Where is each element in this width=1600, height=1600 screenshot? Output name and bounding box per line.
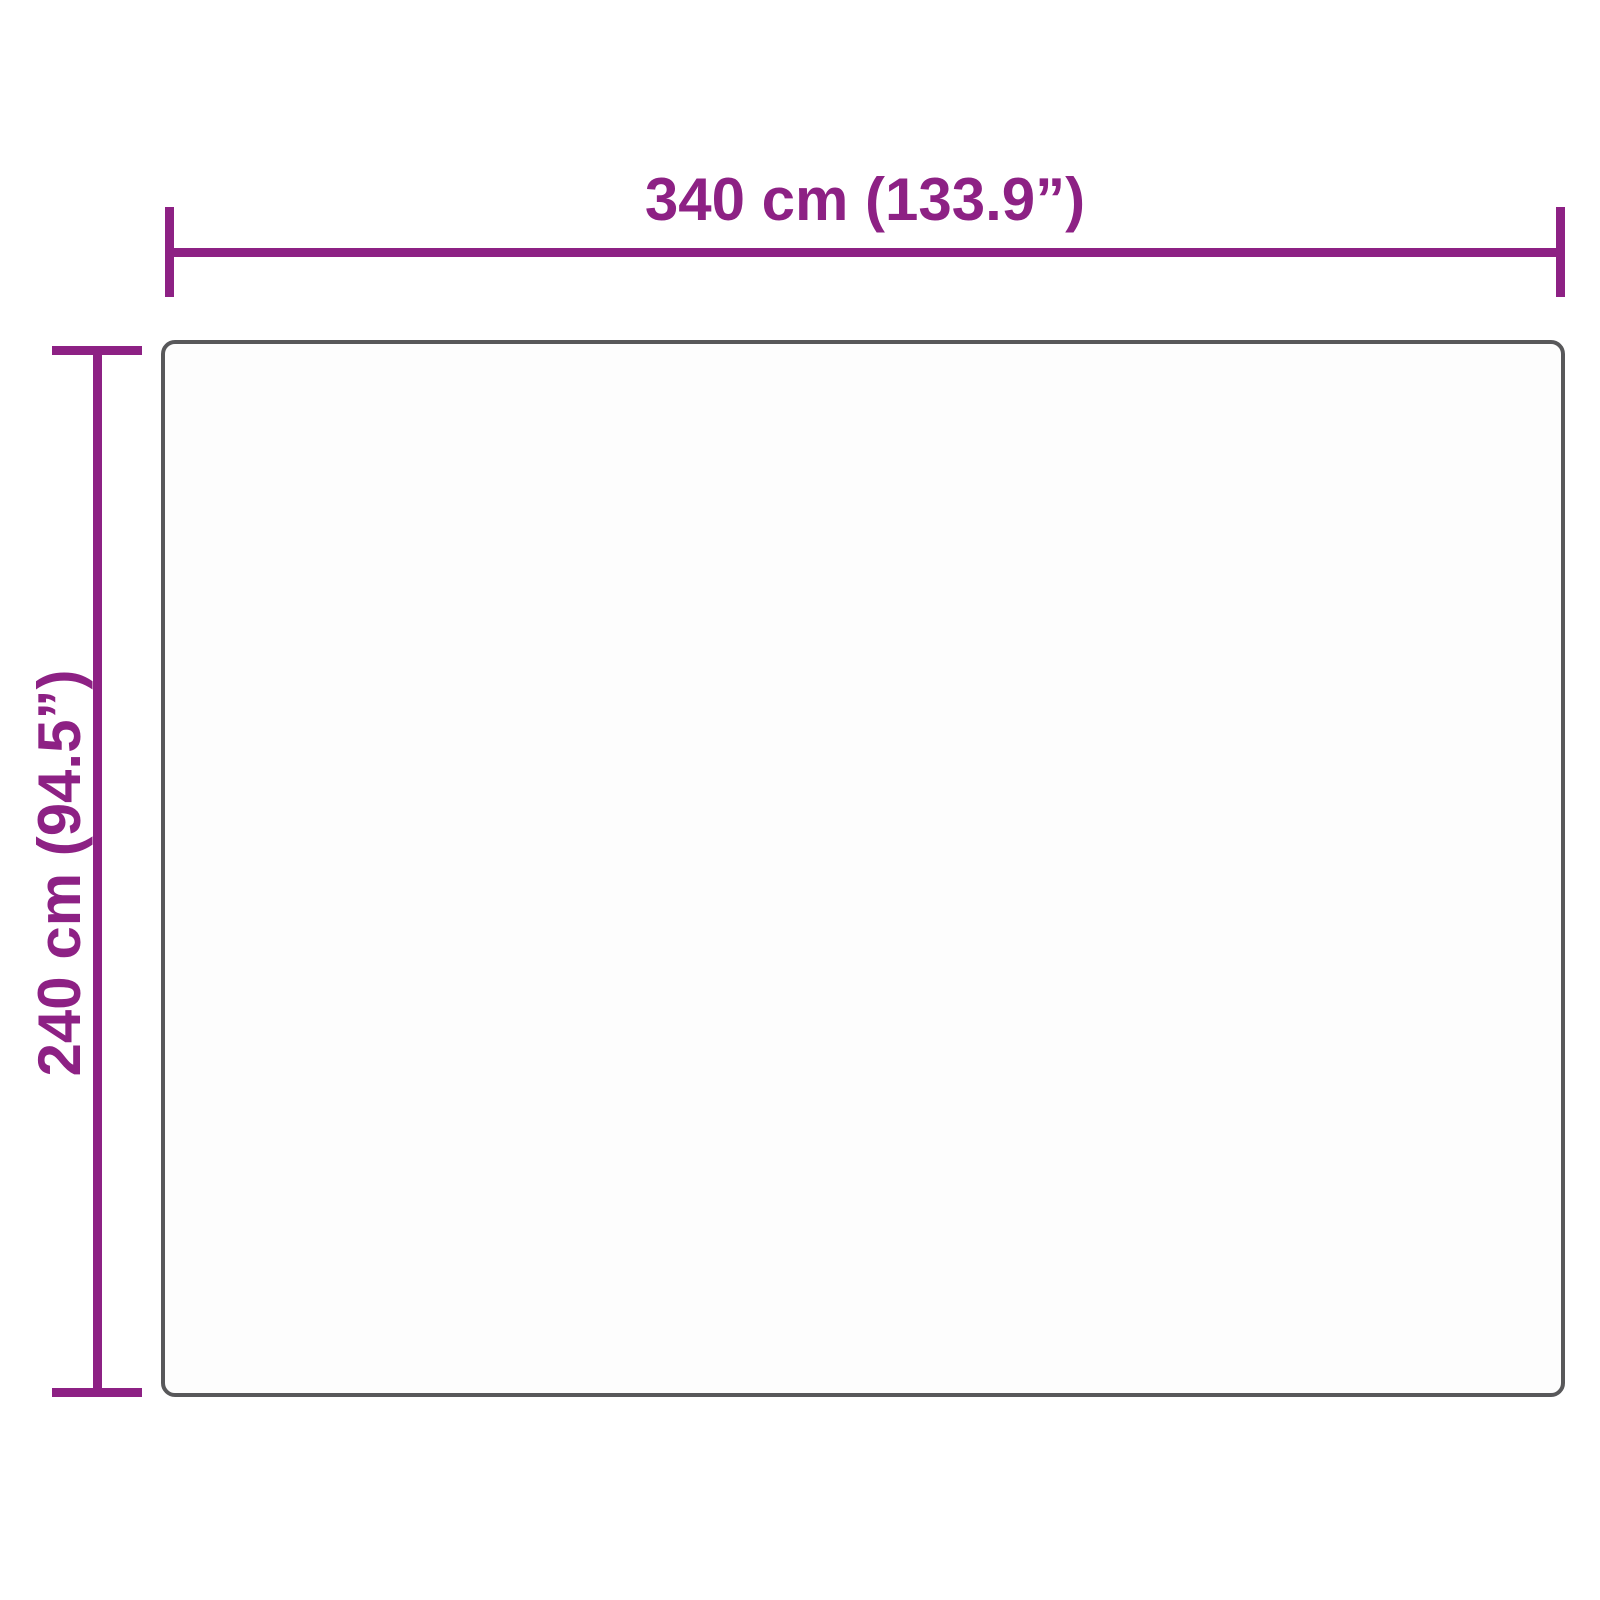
height-dimension-tick-top <box>52 346 142 355</box>
width-dimension-label: 340 cm (133.9”) <box>165 168 1565 232</box>
height-dimension-tick-bottom <box>52 1388 142 1397</box>
product-dimension-diagram: 340 cm (133.9”) 240 cm (94.5”) <box>0 0 1600 1600</box>
product-outline <box>161 340 1565 1397</box>
height-dimension-label: 240 cm (94.5”) <box>28 670 92 1077</box>
height-dimension-line <box>93 350 102 1396</box>
width-dimension-line <box>165 248 1565 257</box>
